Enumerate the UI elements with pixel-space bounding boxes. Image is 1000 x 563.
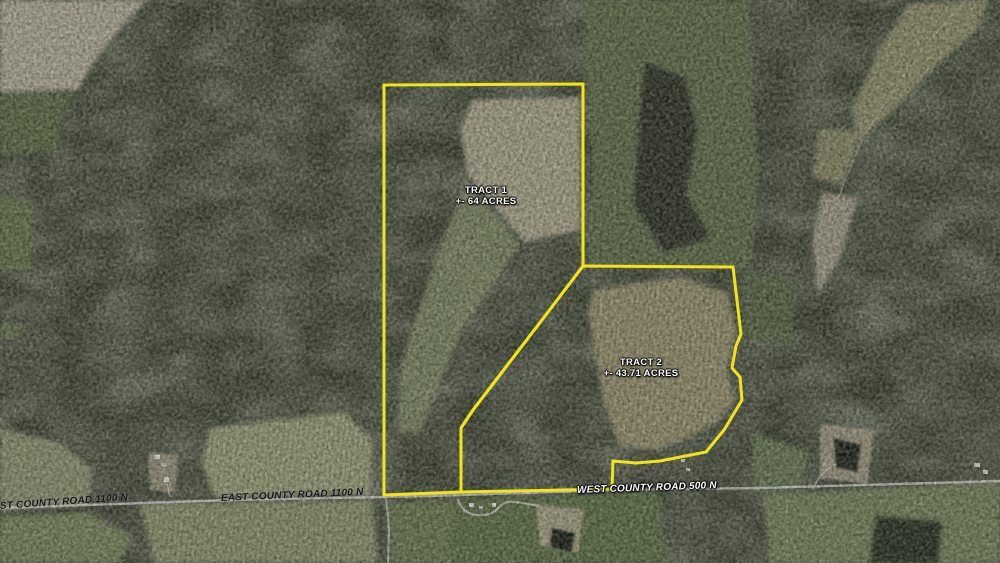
aerial-map: TRACT 1 +- 64 ACRES TRACT 2 +- 43.71 ACR…	[0, 0, 1000, 563]
satellite-basemap	[0, 0, 1000, 563]
